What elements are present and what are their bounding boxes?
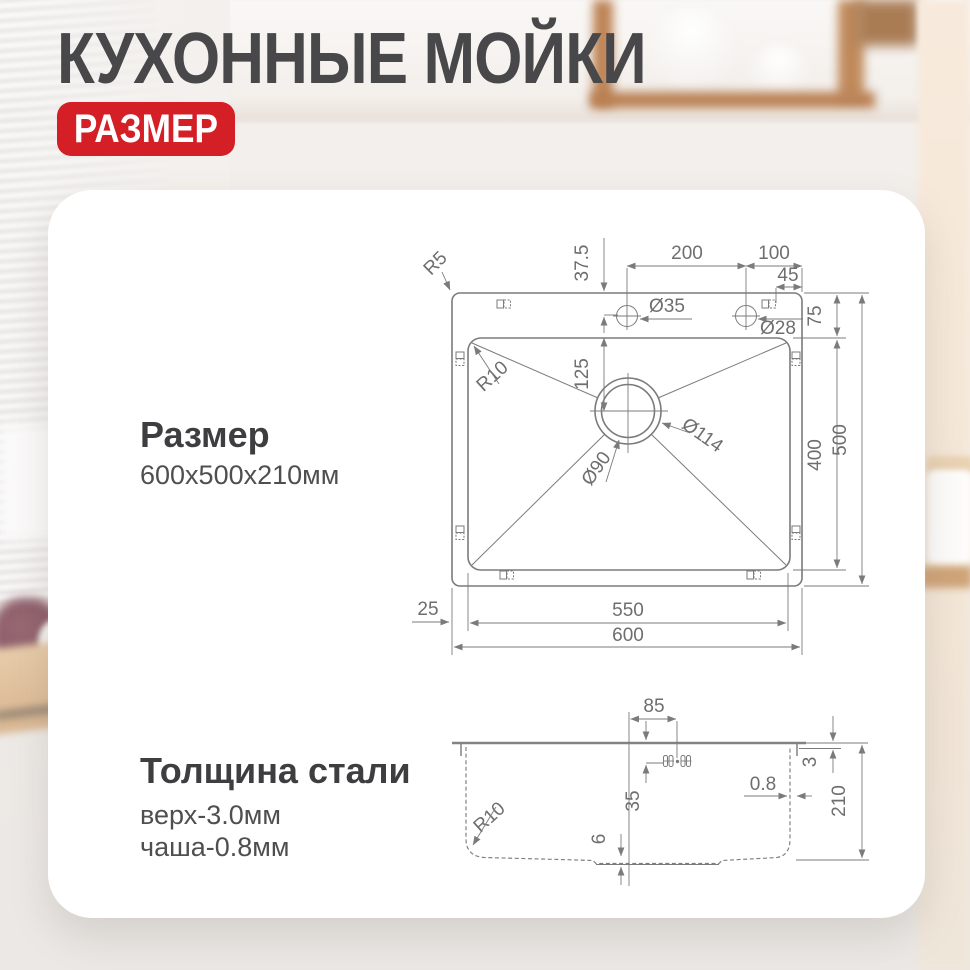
dim-35-label: 35 [623, 790, 644, 811]
dim-45-label: 45 [777, 265, 798, 286]
dim-dia35-label: Ø35 [649, 296, 685, 317]
sink-technical-drawing: 200 100 45 37.5 125 Ø35 Ø28 75 [0, 0, 970, 970]
dim-125-label: 125 [572, 358, 593, 390]
side-view-drawing: 85 35 0.8 3 210 6 R10 [452, 696, 869, 886]
dim-6-label: 6 [589, 834, 610, 845]
dim-85-label: 85 [643, 696, 664, 717]
dim-210-label: 210 [829, 785, 850, 817]
dim-r10-label: R10 [473, 357, 513, 396]
dim-200-label: 200 [671, 243, 703, 264]
dim-dia28-label: Ø28 [760, 318, 796, 339]
top-view-drawing: 200 100 45 37.5 125 Ø35 Ø28 75 [412, 238, 869, 655]
dim-600-label: 600 [612, 625, 644, 646]
dim-37-5-label: 37.5 [572, 245, 593, 282]
dim-500-label: 500 [830, 424, 851, 456]
infographic-page: КУХОННЫЕ МОЙКИ РАЗМЕР Размер 600х500х210… [0, 0, 970, 970]
sink-outline [452, 293, 802, 586]
dim-400-label: 400 [805, 439, 826, 471]
dim-0-8-label: 0.8 [750, 774, 776, 795]
dim-75-label: 75 [805, 305, 826, 326]
dim-dia114-label: Ø114 [678, 414, 727, 457]
dim-25-label: 25 [417, 599, 438, 620]
dim-r5-label: R5 [420, 248, 452, 280]
bowl-outline [468, 338, 790, 570]
dim-100-label: 100 [758, 243, 790, 264]
dim-3-label: 3 [800, 757, 821, 768]
dim-550-label: 550 [612, 600, 644, 621]
